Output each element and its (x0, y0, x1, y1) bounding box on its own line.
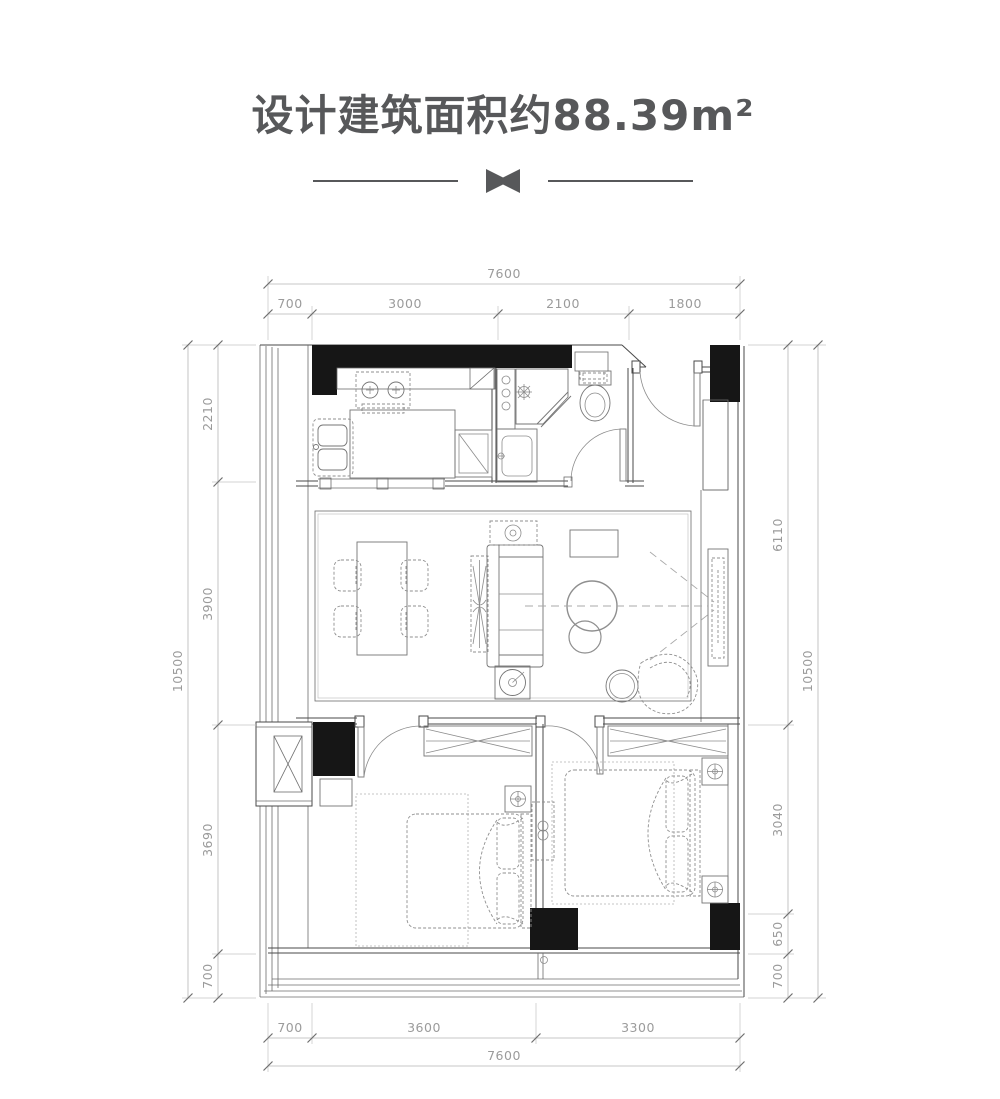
dimensions-top: 7600 700 3000 2100 1800 (264, 266, 745, 340)
dim-right-seg1: 3040 (770, 803, 785, 837)
page-title: 设计建筑面积约88.39m² (251, 91, 754, 140)
shower (516, 369, 571, 427)
dim-left-seg3: 700 (200, 963, 215, 988)
dimensions-left: 10500 2210 3900 3690 700 (170, 341, 256, 1003)
dim-top-total: 7600 (487, 266, 521, 281)
dim-left-seg0: 2210 (200, 397, 215, 431)
dim-left-seg1: 3900 (200, 587, 215, 621)
dim-bottom-seg2: 3300 (621, 1020, 655, 1035)
kitchen-sink (313, 419, 353, 476)
bowtie-icon (486, 169, 520, 193)
bedroom2-bed (565, 770, 700, 896)
bedroom1-nightstand (505, 786, 531, 812)
sofa-side-table (490, 521, 537, 545)
dim-top-seg1: 3000 (388, 296, 422, 311)
washer-column (497, 369, 515, 429)
bedroom1-door (355, 716, 428, 777)
bathroom-door (564, 429, 626, 487)
ac-platform (256, 722, 312, 806)
dim-right-total: 10500 (800, 650, 815, 692)
bedroom1-stool (320, 779, 352, 806)
dim-right-seg0: 6110 (770, 518, 785, 552)
dim-right-seg2: 650 (770, 921, 785, 946)
floor-plan-page: 设计建筑面积约88.39m² (0, 0, 1000, 1099)
upper-cabinets (337, 368, 495, 389)
interior-walls (268, 368, 740, 979)
column-mid-left (313, 722, 355, 776)
living-dining (315, 511, 728, 714)
vanity (497, 429, 537, 482)
column-top-bar (312, 345, 572, 368)
dim-bottom-seg1: 3600 (407, 1020, 441, 1035)
floor-lamp (495, 666, 530, 699)
wall-niche (575, 352, 608, 379)
dining-table (334, 542, 428, 655)
dim-bottom-seg0: 700 (277, 1020, 302, 1035)
column-bottom-mid (530, 908, 578, 950)
bedroom2-nightstand-bottom (702, 876, 728, 903)
dim-right-seg3: 700 (770, 963, 785, 988)
tv-sightlines (525, 552, 714, 660)
plant (471, 556, 488, 652)
balcony-strip (541, 957, 548, 964)
coffee-table (567, 581, 617, 653)
entry-door (632, 361, 702, 426)
dim-bottom-total: 7600 (487, 1048, 521, 1063)
tv-cabinet (708, 549, 728, 666)
sofa (487, 545, 543, 667)
column-top-right (710, 345, 740, 402)
cooktop (356, 372, 410, 413)
title-divider (313, 169, 693, 193)
bedroom2-nightstand-top (702, 758, 728, 785)
dim-left-total: 10500 (170, 650, 185, 692)
column-bottom-right (710, 903, 740, 950)
dim-left-seg2: 3690 (200, 823, 215, 857)
bedroom2-wardrobe (608, 726, 728, 756)
console-table (570, 530, 618, 557)
bedroom1-wardrobe (424, 726, 532, 756)
toilet (579, 371, 611, 421)
floor-plan-svg: 设计建筑面积约88.39m² (0, 0, 1000, 1099)
armchair (638, 654, 698, 714)
fridge (455, 430, 492, 477)
dim-top-seg2: 2100 (546, 296, 580, 311)
entry-closet (703, 400, 728, 490)
dimensions-bottom: 700 3600 3300 7600 (264, 1003, 745, 1072)
kitchen (313, 368, 495, 478)
floor-drain-icon (541, 957, 548, 964)
bathroom (497, 352, 626, 487)
bedroom2-rug (552, 762, 674, 904)
bedroom1-rug (356, 794, 468, 946)
kitchen-window (318, 478, 445, 489)
round-side-table (606, 670, 638, 702)
bedroom1-bed (407, 814, 531, 928)
dim-top-seg3: 1800 (668, 296, 702, 311)
dimensions-right: 6110 3040 650 700 10500 (748, 341, 826, 1003)
bedroom2-door (536, 716, 604, 774)
column-top-left (312, 345, 337, 395)
kitchen-counter (350, 410, 455, 478)
bedroom-2 (532, 716, 728, 904)
dim-top-seg0: 700 (277, 296, 302, 311)
